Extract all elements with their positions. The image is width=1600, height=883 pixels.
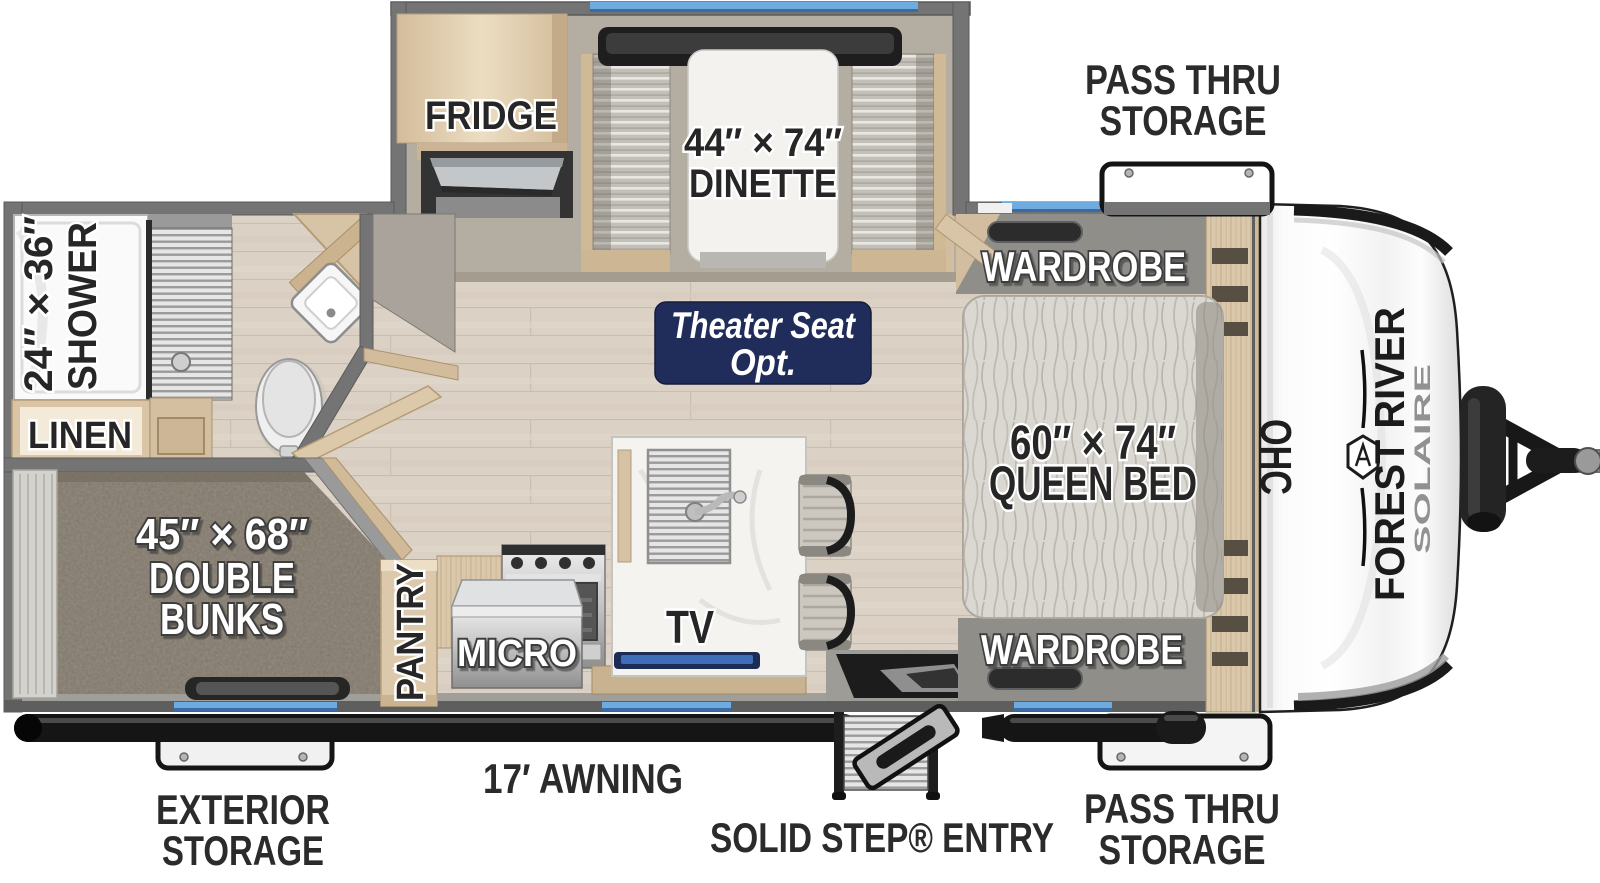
svg-text:44″ × 74″: 44″ × 74″	[684, 121, 842, 165]
svg-text:PASS THRU: PASS THRU	[1085, 56, 1281, 103]
svg-text:Theater Seat: Theater Seat	[671, 305, 856, 346]
svg-text:STORAGE: STORAGE	[1099, 826, 1266, 873]
svg-text:17′ AWNING: 17′ AWNING	[483, 755, 683, 802]
svg-text:OHC: OHC	[1251, 419, 1300, 495]
svg-text:SOLID STEP® ENTRY: SOLID STEP® ENTRY	[710, 814, 1054, 861]
svg-text:FOREST RIVER: FOREST RIVER	[1366, 307, 1413, 601]
svg-text:SHOWER: SHOWER	[61, 222, 105, 390]
svg-text:STORAGE: STORAGE	[162, 827, 324, 874]
svg-text:LINEN: LINEN	[28, 415, 132, 457]
svg-text:45″ × 68″: 45″ × 68″	[136, 510, 308, 559]
svg-text:FRIDGE: FRIDGE	[425, 94, 557, 138]
svg-text:PASS THRU: PASS THRU	[1084, 785, 1280, 832]
svg-text:WARDROBE: WARDROBE	[981, 626, 1183, 673]
svg-text:STORAGE: STORAGE	[1100, 97, 1267, 144]
svg-text:DINETTE: DINETTE	[689, 162, 837, 206]
svg-text:SOLAIRE: SOLAIRE	[1410, 364, 1435, 554]
svg-text:QUEEN BED: QUEEN BED	[989, 458, 1197, 511]
svg-text:24″ × 36″: 24″ × 36″	[17, 216, 61, 392]
svg-text:TV: TV	[666, 601, 714, 653]
svg-text:EXTERIOR: EXTERIOR	[156, 786, 330, 833]
svg-text:Opt.: Opt.	[730, 342, 796, 383]
svg-text:BUNKS: BUNKS	[160, 595, 284, 644]
svg-text:PANTRY: PANTRY	[390, 563, 432, 701]
svg-text:MICRO: MICRO	[457, 633, 577, 675]
svg-text:WARDROBE: WARDROBE	[982, 243, 1186, 290]
